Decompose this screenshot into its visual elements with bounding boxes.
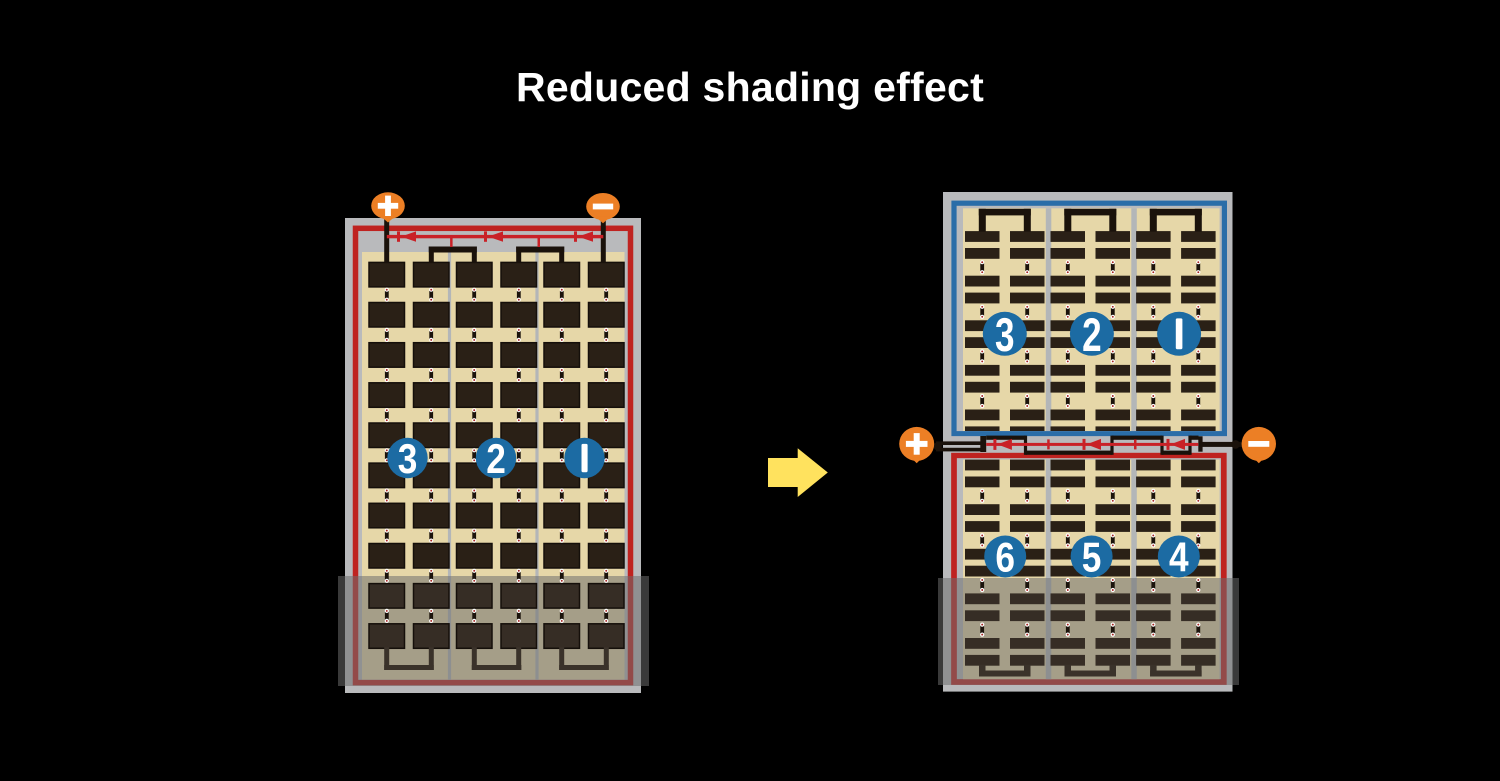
svg-text:4: 4 [1169, 534, 1189, 581]
svg-text:3: 3 [398, 435, 418, 482]
svg-text:3: 3 [995, 308, 1015, 361]
svg-text:Reduced shading effect: Reduced shading effect [516, 64, 984, 110]
svg-text:5: 5 [1082, 534, 1102, 581]
svg-text:2: 2 [486, 435, 506, 482]
svg-text:2: 2 [1082, 308, 1102, 361]
svg-text:6: 6 [995, 534, 1015, 581]
